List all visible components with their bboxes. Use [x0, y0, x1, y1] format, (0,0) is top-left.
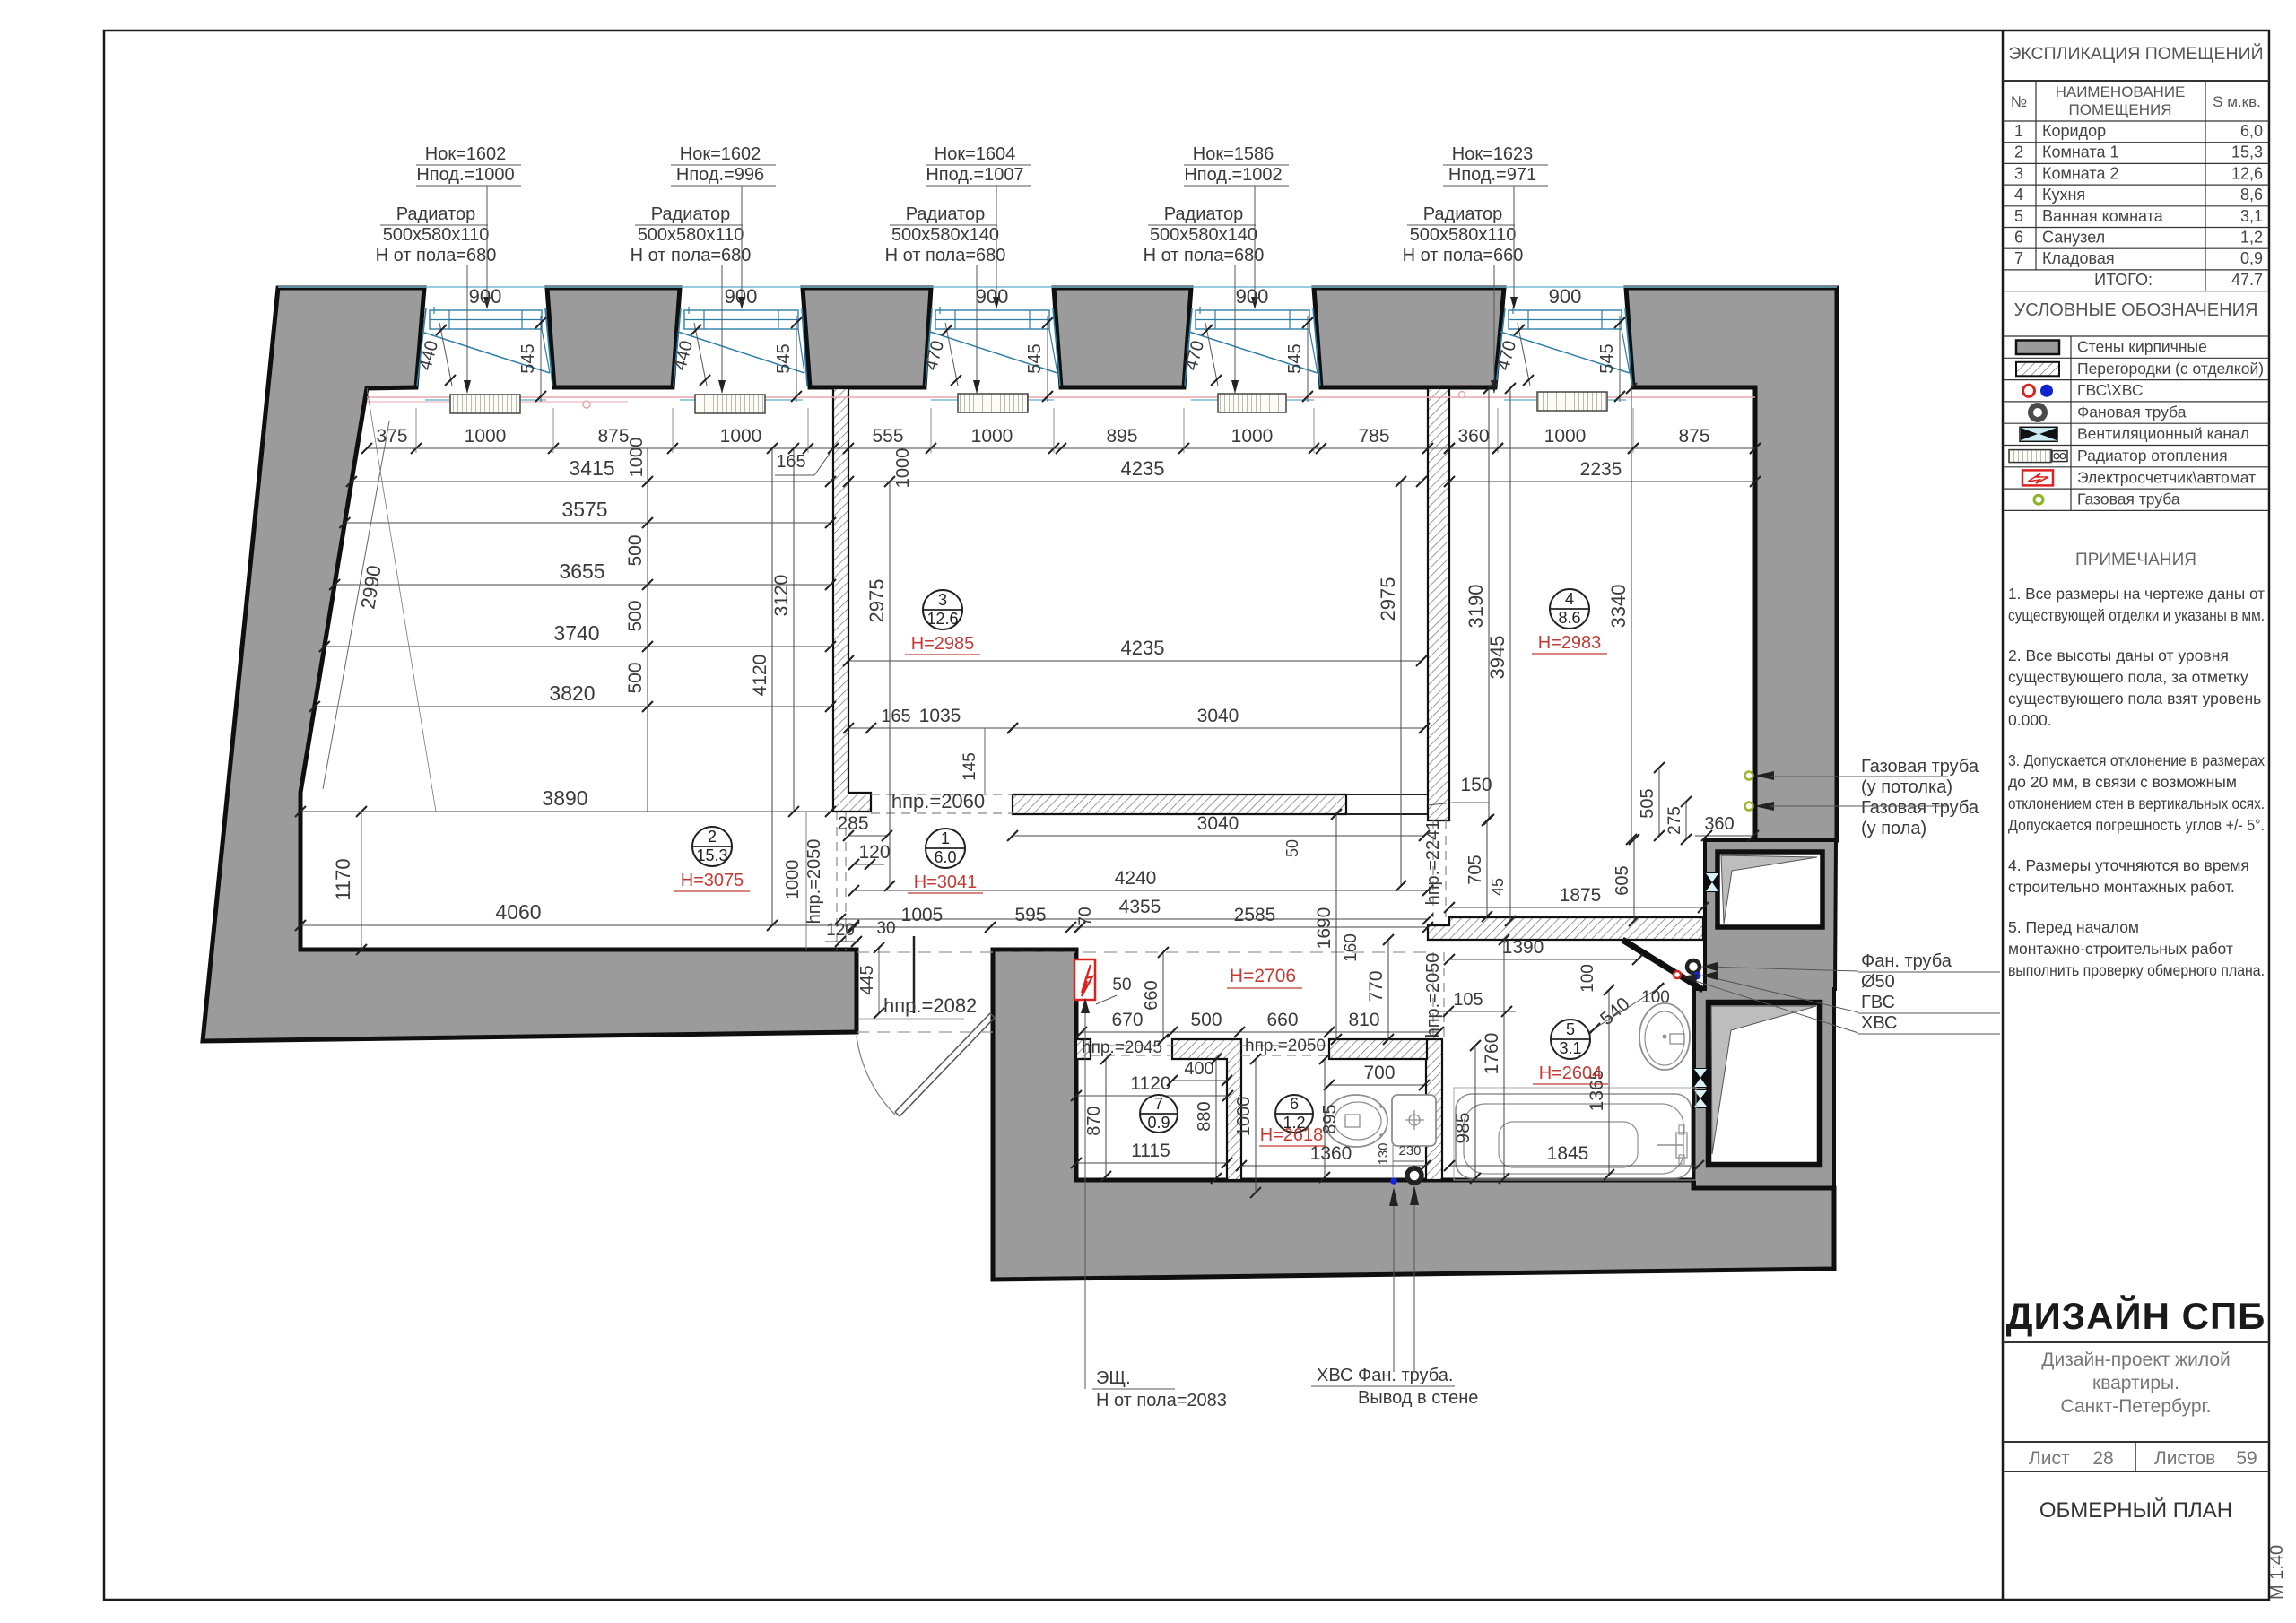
svg-text:Радиатор отопления: Радиатор отопления [2077, 447, 2228, 464]
svg-text:500х580х140: 500х580х140 [1150, 225, 1257, 245]
svg-text:8,6: 8,6 [2240, 186, 2263, 204]
svg-text:3: 3 [938, 591, 947, 609]
svg-text:505: 505 [1638, 788, 1657, 818]
svg-text:7: 7 [2014, 249, 2023, 267]
svg-text:12,6: 12,6 [2231, 164, 2263, 182]
svg-text:Газовая труба: Газовая труба [2077, 490, 2180, 508]
svg-text:Вентиляционный канал: Вентиляционный канал [2077, 425, 2249, 443]
svg-text:100: 100 [1578, 964, 1597, 993]
svg-text:Комната 2: Комната 2 [2042, 164, 2119, 182]
svg-text:Нпод.=1000: Нпод.=1000 [416, 165, 514, 185]
svg-text:3820: 3820 [549, 681, 595, 705]
svg-text:1000: 1000 [720, 426, 762, 447]
svg-text:400: 400 [1184, 1059, 1213, 1079]
svg-text:выполнить проверку обмерного п: выполнить проверку обмерного плана. [2008, 961, 2265, 979]
svg-text:47.7: 47.7 [2231, 271, 2263, 289]
svg-text:670: 670 [1111, 1010, 1143, 1030]
svg-text:Нок=1623: Нок=1623 [1452, 144, 1534, 164]
svg-text:5: 5 [2014, 207, 2023, 225]
svg-text:985: 985 [1453, 1112, 1474, 1143]
svg-text:ИТОГО:: ИТОГО: [2094, 271, 2152, 289]
svg-text:12.6: 12.6 [926, 610, 958, 628]
svg-text:H=2985: H=2985 [911, 634, 975, 654]
svg-text:Газовая труба: Газовая труба [1861, 757, 1979, 777]
svg-text:ОБМЕРНЫЙ ПЛАН: ОБМЕРНЫЙ ПЛАН [2039, 1497, 2232, 1523]
svg-text:375: 375 [376, 426, 407, 447]
svg-text:НАИМЕНОВАНИЕ: НАИМЕНОВАНИЕ [2056, 83, 2186, 100]
svg-text:Н от пола=680: Н от пола=680 [1144, 246, 1265, 265]
svg-text:545: 545 [518, 343, 538, 373]
svg-text:700: 700 [1363, 1063, 1395, 1083]
svg-text:Нпод.=996: Нпод.=996 [676, 165, 764, 185]
svg-text:Нпод.=1007: Нпод.=1007 [926, 165, 1023, 185]
svg-text:6,0: 6,0 [2240, 122, 2263, 140]
svg-text:монтажно-строительных работ: монтажно-строительных работ [2008, 940, 2233, 958]
svg-text:6.0: 6.0 [934, 848, 956, 866]
svg-text:H=3075: H=3075 [681, 871, 744, 890]
svg-text:3890: 3890 [542, 786, 587, 810]
svg-text:875: 875 [597, 426, 629, 447]
svg-text:hпр.=2050: hпр.=2050 [804, 839, 824, 924]
svg-text:165: 165 [881, 707, 910, 726]
svg-text:Вывод в стене: Вывод в стене [1358, 1388, 1478, 1408]
svg-text:Н от пола=2083: Н от пола=2083 [1096, 1391, 1227, 1410]
svg-text:4: 4 [1565, 590, 1574, 608]
svg-text:770: 770 [1366, 970, 1387, 1002]
svg-text:отклонением стен в вертикальны: отклонением стен в вертикальных осях. [2008, 794, 2265, 812]
svg-text:Электросчетчик\автомат: Электросчетчик\автомат [2077, 468, 2256, 486]
svg-text:1000: 1000 [971, 426, 1013, 447]
svg-text:500х580х110: 500х580х110 [383, 225, 490, 245]
svg-text:hпр.=2082: hпр.=2082 [883, 994, 977, 1017]
svg-text:Ø50: Ø50 [1861, 972, 1895, 992]
svg-text:500х580х140: 500х580х140 [891, 225, 999, 245]
svg-text:1000: 1000 [1234, 1097, 1254, 1137]
svg-text:hпр.=2241: hпр.=2241 [1423, 820, 1443, 906]
svg-text:545: 545 [774, 343, 794, 373]
svg-text:Перегородки (с отделкой): Перегородки (с отделкой) [2077, 360, 2264, 378]
svg-text:Дизайн-проект жилой: Дизайн-проект жилой [2041, 1350, 2231, 1370]
svg-text:900: 900 [725, 285, 758, 308]
svg-text:595: 595 [1014, 905, 1046, 925]
svg-text:50: 50 [1112, 976, 1131, 994]
svg-text:880: 880 [1195, 1101, 1214, 1131]
svg-text:1690: 1690 [1314, 907, 1335, 950]
svg-text:5: 5 [1566, 1020, 1575, 1038]
svg-text:S м.кв.: S м.кв. [2213, 93, 2261, 110]
svg-text:Допускается погрешность углов: Допускается погрешность углов +/- 5°. [2008, 816, 2265, 834]
svg-text:1000: 1000 [893, 448, 913, 489]
svg-text:4120: 4120 [750, 655, 770, 697]
svg-text:2. Все высоты даны от уровня: 2. Все высоты даны от уровня [2008, 647, 2229, 664]
svg-text:3,1: 3,1 [2240, 207, 2263, 225]
svg-text:2: 2 [708, 828, 717, 846]
svg-text:545: 545 [1597, 343, 1617, 373]
svg-text:4235: 4235 [1121, 457, 1165, 480]
svg-text:квартиры.: квартиры. [2092, 1373, 2179, 1393]
svg-text:1120: 1120 [1130, 1073, 1170, 1094]
svg-text:Фановая труба: Фановая труба [2077, 403, 2187, 421]
svg-text:705: 705 [1465, 855, 1485, 884]
svg-text:1,2: 1,2 [2240, 229, 2263, 247]
svg-text:Н от пола=680: Н от пола=680 [376, 246, 497, 265]
svg-text:130: 130 [1376, 1142, 1391, 1165]
svg-text:900: 900 [469, 285, 502, 308]
svg-text:3945: 3945 [1486, 636, 1509, 680]
svg-text:4355: 4355 [1119, 897, 1161, 917]
svg-text:1760: 1760 [1482, 1033, 1502, 1075]
svg-text:существующего пола, за отметку: существующего пола, за отметку [2008, 668, 2248, 686]
svg-text:Нпод.=971: Нпод.=971 [1448, 165, 1536, 185]
svg-text:230: 230 [1398, 1143, 1421, 1159]
svg-text:105: 105 [1453, 990, 1483, 1010]
svg-text:существующей отделки и указаны: существующей отделки и указаны в мм. [2008, 606, 2265, 624]
svg-text:3340: 3340 [1607, 585, 1630, 629]
svg-text:285: 285 [837, 813, 868, 834]
svg-text:Санузел: Санузел [2042, 229, 2105, 247]
svg-text:605: 605 [1613, 865, 1632, 895]
svg-text:70: 70 [1076, 907, 1095, 925]
svg-text:Радиатор: Радиатор [396, 204, 476, 224]
svg-text:500х580х110: 500х580х110 [638, 225, 744, 245]
svg-text:Радиатор: Радиатор [906, 204, 986, 224]
svg-text:6: 6 [1290, 1095, 1299, 1113]
svg-text:до 20 мм, в связи с возможным: до 20 мм, в связи с возможным [2008, 773, 2237, 791]
svg-text:1: 1 [2014, 122, 2023, 140]
svg-text:3190: 3190 [1465, 585, 1487, 629]
svg-text:Нок=1602: Нок=1602 [425, 144, 507, 164]
svg-text:500: 500 [625, 534, 646, 566]
svg-text:120: 120 [858, 842, 890, 863]
svg-text:H=2983: H=2983 [1538, 633, 1602, 653]
svg-text:500: 500 [625, 600, 646, 631]
svg-text:4235: 4235 [1121, 637, 1165, 659]
svg-text:1845: 1845 [1547, 1143, 1589, 1164]
svg-text:hпр.=2050: hпр.=2050 [1423, 953, 1443, 1038]
svg-text:3740: 3740 [553, 621, 599, 645]
svg-text:H=3041: H=3041 [914, 872, 978, 892]
svg-text:900: 900 [1236, 285, 1269, 308]
svg-text:1. Все размеры на чертеже даны: 1. Все размеры на чертеже даны от [2008, 585, 2265, 603]
svg-text:45: 45 [1489, 878, 1507, 896]
svg-text:360: 360 [1457, 426, 1489, 447]
svg-text:1875: 1875 [1560, 885, 1602, 906]
svg-text:ГВС: ГВС [1861, 993, 1895, 1012]
svg-text:3655: 3655 [559, 560, 604, 583]
svg-text:4. Размеры уточняются во время: 4. Размеры уточняются во время [2008, 856, 2249, 874]
svg-text:ДИЗАЙН СПБ: ДИЗАЙН СПБ [2006, 1294, 2266, 1337]
svg-text:М 1:40: М 1:40 [2267, 1545, 2287, 1600]
svg-text:810: 810 [1348, 1010, 1379, 1030]
svg-text:30: 30 [876, 919, 895, 938]
svg-text:УСЛОВНЫЕ ОБОЗНАЧЕНИЯ: УСЛОВНЫЕ ОБОЗНАЧЕНИЯ [2014, 300, 2258, 320]
svg-text:Нок=1604: Нок=1604 [935, 144, 1016, 164]
svg-text:160: 160 [1342, 933, 1361, 962]
svg-text:660: 660 [1142, 980, 1161, 1010]
svg-text:hпр.=2050: hпр.=2050 [1245, 1037, 1326, 1055]
svg-text:Газовая труба: Газовая труба [1861, 798, 1979, 818]
svg-text:15.3: 15.3 [696, 846, 727, 864]
svg-text:165: 165 [776, 452, 805, 472]
svg-text:500: 500 [625, 662, 646, 693]
svg-text:строительно монтажных работ.: строительно монтажных работ. [2008, 878, 2235, 896]
svg-text:0.9: 0.9 [1147, 1114, 1170, 1132]
svg-text:500: 500 [1190, 1010, 1222, 1030]
svg-text:3040: 3040 [1197, 813, 1239, 834]
svg-text:785: 785 [1358, 426, 1389, 447]
svg-text:Лист: Лист [2029, 1448, 2070, 1469]
svg-text:100: 100 [1641, 988, 1670, 1007]
svg-text:ЭКСПЛИКАЦИЯ ПОМЕЩЕНИЙ: ЭКСПЛИКАЦИЯ ПОМЕЩЕНИЙ [2008, 42, 2263, 64]
svg-text:Нок=1586: Нок=1586 [1193, 144, 1274, 164]
svg-text:900: 900 [1549, 285, 1582, 308]
svg-text:7: 7 [1154, 1095, 1163, 1113]
svg-text:5. Перед началом: 5. Перед началом [2008, 918, 2139, 936]
svg-text:hпр.=2045: hпр.=2045 [1082, 1038, 1162, 1057]
svg-text:hпр.=2060: hпр.=2060 [891, 790, 985, 812]
svg-text:ХВС: ХВС [1861, 1013, 1897, 1033]
svg-text:ПОМЕЩЕНИЯ: ПОМЕЩЕНИЯ [2069, 101, 2172, 118]
svg-text:545: 545 [1025, 343, 1045, 373]
svg-text:H=2604: H=2604 [1539, 1063, 1603, 1083]
svg-text:2975: 2975 [1377, 577, 1399, 621]
svg-text:145: 145 [961, 752, 979, 781]
svg-text:4240: 4240 [1115, 868, 1157, 889]
svg-text:1000: 1000 [1544, 426, 1587, 447]
svg-text:120: 120 [826, 921, 855, 940]
svg-text:ГВС\ХВС: ГВС\ХВС [2077, 381, 2143, 399]
svg-text:H=2706: H=2706 [1230, 966, 1296, 986]
svg-text:555: 555 [872, 426, 903, 447]
svg-text:3575: 3575 [561, 498, 607, 521]
svg-text:150: 150 [1460, 775, 1492, 795]
svg-text:3040: 3040 [1197, 706, 1239, 726]
svg-text:ПРИМЕЧАНИЯ: ПРИМЕЧАНИЯ [2075, 551, 2196, 569]
svg-text:Комната 1: Комната 1 [2042, 143, 2119, 161]
svg-text:900: 900 [976, 285, 1009, 308]
svg-text:Листов: Листов [2154, 1448, 2215, 1469]
svg-text:Радиатор: Радиатор [651, 204, 731, 224]
svg-text:1: 1 [941, 829, 950, 847]
svg-text:(у потолка): (у потолка) [1861, 777, 1952, 797]
svg-text:2235: 2235 [1580, 459, 1622, 480]
svg-text:1000: 1000 [627, 438, 647, 478]
svg-text:500х580х110: 500х580х110 [1410, 225, 1517, 245]
svg-text:1005: 1005 [901, 905, 944, 925]
svg-text:3. Допускается отклонение в ра: 3. Допускается отклонение в размерах [2008, 751, 2265, 769]
svg-text:2: 2 [2014, 143, 2023, 161]
svg-text:0.000.: 0.000. [2008, 711, 2052, 729]
svg-text:Радиатор: Радиатор [1423, 204, 1503, 224]
svg-text:ЭЩ.: ЭЩ. [1096, 1368, 1131, 1388]
svg-text:870: 870 [1084, 1106, 1104, 1135]
svg-text:3120: 3120 [771, 575, 792, 617]
svg-text:3.1: 3.1 [1559, 1039, 1581, 1057]
svg-text:Н от пола=660: Н от пола=660 [1403, 246, 1524, 265]
svg-text:Ванная комната: Ванная комната [2042, 207, 2164, 225]
svg-text:Нок=1602: Нок=1602 [680, 144, 761, 164]
svg-text:2975: 2975 [865, 579, 888, 623]
svg-text:4060: 4060 [495, 900, 541, 924]
svg-text:4: 4 [2014, 186, 2023, 204]
svg-text:ХВС: ХВС [1317, 1366, 1352, 1385]
svg-text:875: 875 [1678, 426, 1709, 447]
svg-text:545: 545 [1285, 343, 1305, 373]
svg-text:1115: 1115 [1131, 1141, 1170, 1161]
svg-text:1390: 1390 [1502, 937, 1544, 958]
svg-text:3: 3 [2014, 164, 2023, 182]
svg-text:50: 50 [1283, 839, 1301, 857]
svg-text:Фан. труба.: Фан. труба. [1358, 1366, 1453, 1385]
svg-text:H=2618: H=2618 [1260, 1125, 1324, 1145]
svg-text:2585: 2585 [1234, 905, 1276, 925]
svg-text:Радиатор: Радиатор [1164, 204, 1244, 224]
svg-text:6: 6 [2014, 229, 2023, 247]
svg-text:Н от пола=680: Н от пола=680 [885, 246, 1006, 265]
svg-text:1170: 1170 [332, 858, 354, 900]
svg-text:895: 895 [1106, 426, 1137, 447]
svg-text:3415: 3415 [569, 456, 614, 480]
svg-text:275: 275 [1665, 806, 1684, 835]
svg-text:Кухня: Кухня [2042, 186, 2085, 204]
svg-text:Н от пола=680: Н от пола=680 [631, 246, 752, 265]
svg-text:1000: 1000 [783, 860, 803, 900]
svg-text:1000: 1000 [1231, 426, 1274, 447]
svg-text:Нпод.=1002: Нпод.=1002 [1184, 165, 1282, 185]
svg-text:Коридор: Коридор [2042, 122, 2106, 140]
svg-text:№: № [2011, 93, 2027, 110]
svg-text:360: 360 [1704, 814, 1734, 834]
svg-text:1000: 1000 [465, 426, 507, 447]
svg-text:Фан. труба: Фан. труба [1861, 951, 1952, 971]
svg-text:8.6: 8.6 [1558, 609, 1580, 627]
svg-text:59: 59 [2236, 1448, 2257, 1469]
svg-text:0,9: 0,9 [2240, 249, 2263, 267]
svg-text:1035: 1035 [919, 706, 961, 726]
svg-text:(у пола): (у пола) [1861, 819, 1926, 838]
svg-text:660: 660 [1266, 1010, 1298, 1030]
svg-text:15,3: 15,3 [2231, 143, 2263, 161]
svg-text:Стены кирпичные: Стены кирпичные [2077, 338, 2207, 356]
svg-text:Санкт-Петербург.: Санкт-Петербург. [2061, 1396, 2212, 1417]
svg-text:Кладовая: Кладовая [2042, 249, 2115, 267]
svg-text:445: 445 [857, 965, 877, 994]
svg-text:существующего пола взят уровен: существующего пола взят уровень [2008, 690, 2261, 707]
svg-text:28: 28 [2092, 1448, 2113, 1469]
